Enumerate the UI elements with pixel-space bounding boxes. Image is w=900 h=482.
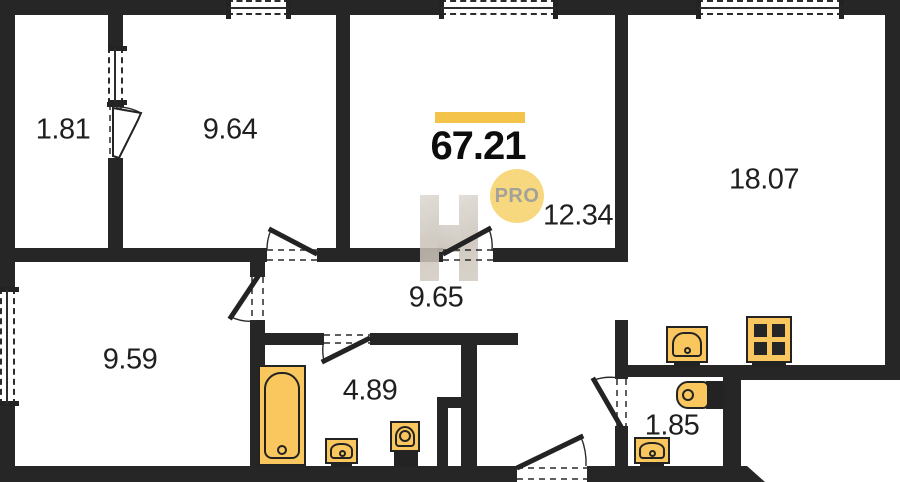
- room-area-label-hallway: 9.65: [409, 282, 463, 315]
- room-area-label-living: 12.34: [543, 200, 613, 233]
- pro-badge: PRO: [490, 169, 544, 223]
- room-area-label-bathroom: 4.89: [343, 375, 397, 408]
- door-swing-entrance: [517, 437, 587, 479]
- room-area-label-wc: 1.85: [645, 410, 699, 443]
- door-swing-balcony: [107, 102, 141, 158]
- total-area-value: 67.21: [408, 124, 548, 169]
- room-area-label-kitchen-living: 18.07: [729, 164, 799, 197]
- door-swing-living: [443, 229, 493, 260]
- accent-bar: [435, 112, 525, 123]
- door-swing-bedroom: [267, 230, 317, 260]
- room-area-label-room: 9.59: [103, 344, 157, 377]
- floor-plan: 1.81 9.64 12.34 18.07 9.65 9.59 4.89 1.8…: [0, 0, 900, 482]
- room-area-label-bedroom: 9.64: [203, 114, 257, 147]
- doors-layer: [0, 0, 900, 482]
- door-swing-wc: [594, 377, 626, 426]
- door-swing-room: [231, 277, 263, 321]
- room-area-label-balcony: 1.81: [36, 114, 90, 147]
- door-swing-bathroom: [323, 335, 370, 361]
